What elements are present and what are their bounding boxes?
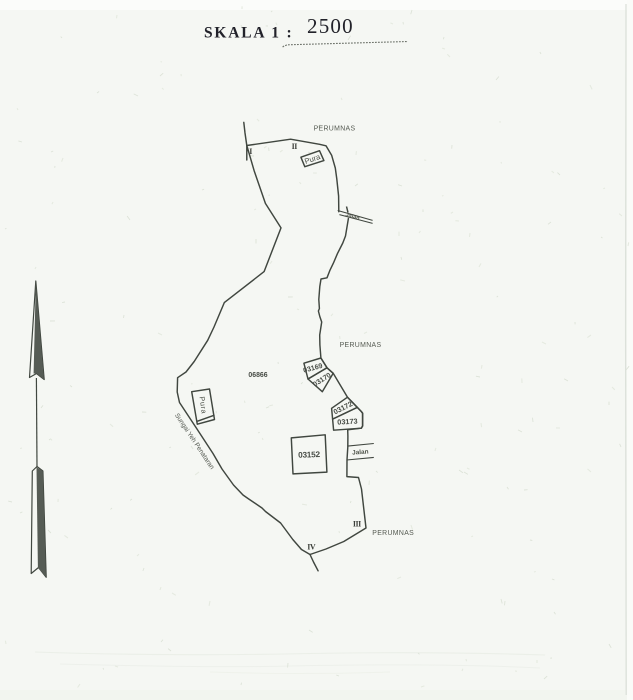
svg-text:06866: 06866 [248,372,267,379]
svg-text:PERUMNAS: PERUMNAS [340,342,382,349]
svg-text:03173: 03173 [337,417,358,427]
svg-text:2500: 2500 [307,14,354,38]
svg-text:Jalan: Jalan [352,448,369,456]
svg-text:PERUMNAS: PERUMNAS [372,530,414,537]
svg-text:PERUMNAS: PERUMNAS [314,125,356,132]
svg-text:II: II [292,142,298,151]
svg-text:I: I [249,147,252,156]
svg-text:SKALA 1 :: SKALA 1 : [204,25,293,42]
svg-text:03152: 03152 [298,450,321,460]
svg-text:IV: IV [307,542,316,551]
svg-text:III: III [353,520,361,529]
